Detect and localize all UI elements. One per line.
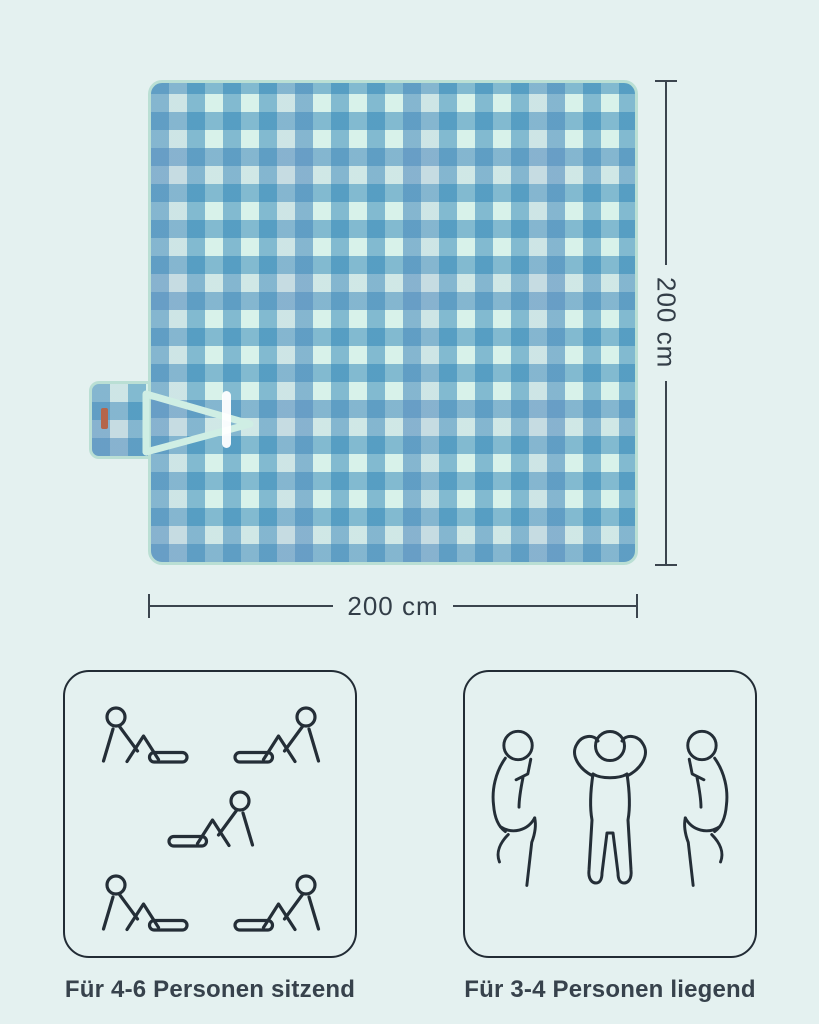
- dimension-end-cap: [655, 564, 677, 566]
- person-sitting-icon: [95, 706, 195, 768]
- sitting-capacity-card: [63, 670, 357, 958]
- brand-tag: [101, 408, 108, 429]
- lying-capacity-card: [463, 670, 757, 958]
- lying-capacity-label: Für 3-4 Personen liegend: [463, 976, 757, 1004]
- person-lying-side-icon: [658, 723, 742, 905]
- dimension-line: [665, 381, 667, 564]
- width-dimension: 200 cm: [148, 592, 638, 620]
- person-sitting-icon: [161, 790, 261, 852]
- person-lying-side-icon: [478, 723, 562, 905]
- dimension-line: [150, 605, 333, 607]
- carry-strap-loop: [138, 384, 263, 462]
- width-dimension-label: 200 cm: [347, 591, 438, 622]
- picnic-blanket: [148, 80, 638, 565]
- dimension-end-cap: [636, 594, 638, 618]
- height-dimension-label: 200 cm: [651, 277, 682, 368]
- sitting-capacity-label: Für 4-6 Personen sitzend: [63, 976, 357, 1004]
- person-sitting-icon: [227, 706, 327, 768]
- person-sitting-icon: [227, 874, 327, 936]
- dimension-line: [453, 605, 636, 607]
- height-dimension: 200 cm: [655, 80, 677, 566]
- person-sitting-icon: [95, 874, 195, 936]
- product-infographic: 200 cm 200 cm Für 4-6 Personen sitzend F…: [0, 0, 819, 1024]
- dimension-line: [665, 82, 667, 265]
- velcro-strip: [222, 391, 231, 448]
- person-lying-back-icon: [564, 719, 656, 909]
